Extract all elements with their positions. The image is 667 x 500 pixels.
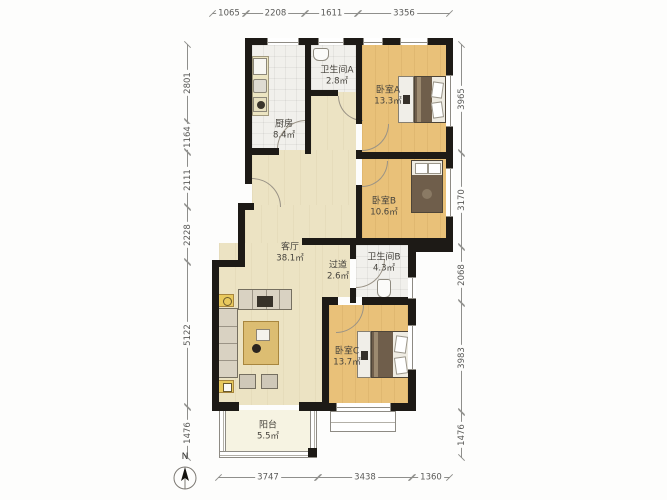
- tv-icon: [257, 296, 273, 307]
- floor-plan: 厨房 8.4㎡ 卫生间A 2.8㎡ 卧室A 13.3㎡ 卧室B 10.6㎡ 客厅…: [0, 0, 667, 500]
- balcony-window-bottom: [219, 451, 317, 458]
- wall: [302, 238, 453, 245]
- dimension-value: 1476: [457, 422, 467, 448]
- window: [408, 277, 416, 299]
- room-area: 8.4㎡: [273, 130, 295, 140]
- window: [318, 38, 344, 45]
- dimension-value: 3170: [457, 187, 467, 213]
- dimension-value: 3965: [457, 86, 467, 112]
- north-arrow-icon: N: [170, 452, 200, 497]
- dimension-segment: 1360: [412, 477, 450, 478]
- ottoman-icon: [261, 374, 278, 389]
- coffee-table-icon: [243, 321, 279, 365]
- dimension-value: 2111: [183, 167, 193, 193]
- dimension-segment: 2228: [187, 207, 188, 262]
- window: [446, 168, 453, 217]
- dimension-segment: 1476: [461, 412, 462, 458]
- ottoman-icon: [239, 374, 256, 389]
- sink-icon: [253, 79, 267, 93]
- room-area: 13.3㎡: [374, 96, 401, 106]
- room-label-balcony: 阳台 5.5㎡: [257, 421, 279, 442]
- room-label-bedroom-a: 卧室A 13.3㎡: [374, 86, 401, 107]
- dimension-segment: 1164: [187, 122, 188, 152]
- dimension-value: 5122: [183, 322, 193, 348]
- bed-icon: [414, 76, 446, 123]
- bed-icon: [371, 331, 410, 378]
- room-name: 客厅: [276, 243, 303, 254]
- room-area: 10.6㎡: [370, 207, 397, 217]
- wall: [350, 245, 356, 259]
- toilet-icon: [377, 279, 391, 298]
- dimension-segment: 3356: [358, 13, 450, 14]
- fridge-icon: [253, 58, 267, 75]
- dimension-value: 3983: [457, 345, 467, 371]
- dimension-value: 2068: [457, 262, 467, 288]
- dimension-value: 1360: [418, 473, 444, 483]
- room-name: 卧室A: [374, 86, 401, 97]
- wall: [446, 38, 453, 252]
- side-table-icon: [218, 294, 234, 307]
- dimension-segment: 3438: [318, 477, 412, 478]
- room-label-bedroom-c: 卧室C 13.7㎡: [333, 347, 360, 368]
- wall: [350, 288, 356, 303]
- dimension-segment: 1065: [212, 13, 246, 14]
- dimension-segment: 3983: [461, 303, 462, 412]
- room-area: 13.7㎡: [333, 357, 360, 367]
- window: [336, 403, 391, 411]
- dimension-segment: 2208: [246, 13, 305, 14]
- dimension-segment: 3965: [461, 44, 462, 153]
- room-label-kitchen: 厨房 8.4㎡: [273, 120, 295, 141]
- wall: [389, 403, 416, 411]
- wall: [212, 260, 219, 410]
- wall: [238, 203, 245, 266]
- side-table-icon: [218, 380, 234, 393]
- room-label-bathroom-a: 卫生间A 2.8㎡: [320, 66, 353, 87]
- wall: [356, 185, 362, 245]
- window: [408, 325, 416, 370]
- dimension-value: 1476: [183, 420, 193, 446]
- wall: [212, 402, 239, 411]
- room-area: 2.8㎡: [320, 76, 353, 86]
- window: [363, 38, 383, 45]
- dimension-segment: 3170: [461, 153, 462, 247]
- room-area: 5.5㎡: [257, 431, 279, 441]
- wall: [305, 38, 311, 154]
- dimension-segment: 2068: [461, 247, 462, 303]
- sofa-icon: [218, 308, 238, 378]
- dimension-segment: 2801: [187, 44, 188, 122]
- room-label-bedroom-b: 卧室B 10.6㎡: [370, 197, 397, 218]
- room-name: 卫生间A: [320, 66, 353, 77]
- dimension-value: 2801: [183, 70, 193, 96]
- bay-window-sill: [331, 422, 395, 423]
- room-label-bathroom-b: 卫生间B 4.3㎡: [367, 253, 400, 274]
- north-label: N: [170, 452, 200, 462]
- window: [400, 38, 428, 45]
- wall: [308, 448, 317, 457]
- dimension-segment: 1476: [187, 407, 188, 458]
- dimension-value: 1164: [183, 124, 193, 150]
- room-name: 厨房: [273, 120, 295, 131]
- stove-icon: [253, 97, 267, 112]
- dimension-segment: 5122: [187, 262, 188, 407]
- room-name: 卧室B: [370, 197, 397, 208]
- bed-icon: [411, 160, 443, 213]
- dimension-value: 2208: [263, 9, 289, 19]
- dimension-value: 3356: [391, 9, 417, 19]
- room-area: 38.1㎡: [276, 253, 303, 263]
- window: [446, 75, 453, 127]
- balcony-window-left: [219, 410, 226, 457]
- dimension-segment: 2111: [187, 152, 188, 207]
- dimension-value: 3438: [352, 473, 378, 483]
- window: [267, 38, 299, 45]
- wall: [245, 38, 252, 154]
- dimension-value: 1065: [216, 9, 242, 19]
- room-label-living: 客厅 38.1㎡: [276, 243, 303, 264]
- bay-window: [330, 411, 396, 432]
- room-area: 4.3㎡: [367, 263, 400, 273]
- dimension-value: 3747: [255, 473, 281, 483]
- room-label-hallway: 过道 2.6㎡: [327, 261, 349, 282]
- room-name: 过道: [327, 261, 349, 272]
- room-name: 阳台: [257, 421, 279, 432]
- wall: [356, 152, 453, 159]
- room-name: 卫生间B: [367, 253, 400, 264]
- wall: [245, 148, 279, 155]
- north-arrow-graphic: [170, 463, 200, 493]
- toilet-icon: [313, 48, 329, 61]
- wall: [356, 38, 362, 124]
- dimension-segment: 1611: [305, 13, 358, 14]
- dimension-value: 1611: [319, 9, 345, 19]
- dimension-segment: 3747: [218, 477, 318, 478]
- wall: [311, 90, 338, 96]
- room-area: 2.6㎡: [327, 271, 349, 281]
- dimension-value: 2228: [183, 222, 193, 248]
- room-name: 卧室C: [333, 347, 360, 358]
- wall: [322, 297, 329, 410]
- wall: [322, 403, 336, 411]
